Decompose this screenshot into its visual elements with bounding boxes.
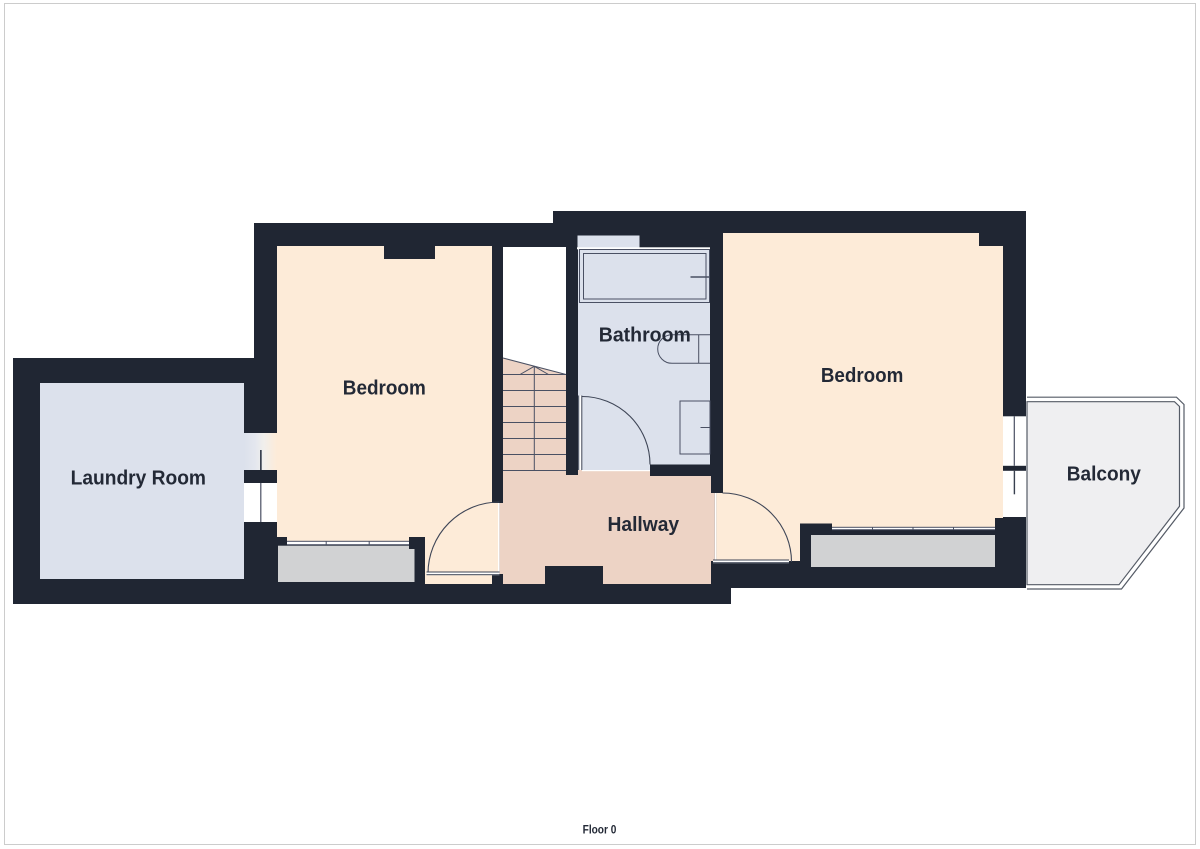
svg-text:Bedroom: Bedroom: [821, 364, 903, 387]
svg-text:Bathroom: Bathroom: [599, 324, 691, 346]
svg-text:Floor 0: Floor 0: [583, 824, 617, 837]
svg-text:Bedroom: Bedroom: [343, 377, 426, 400]
svg-text:Laundry Room: Laundry Room: [71, 467, 206, 490]
svg-text:Hallway: Hallway: [607, 513, 679, 536]
svg-text:Balcony: Balcony: [1067, 463, 1141, 486]
